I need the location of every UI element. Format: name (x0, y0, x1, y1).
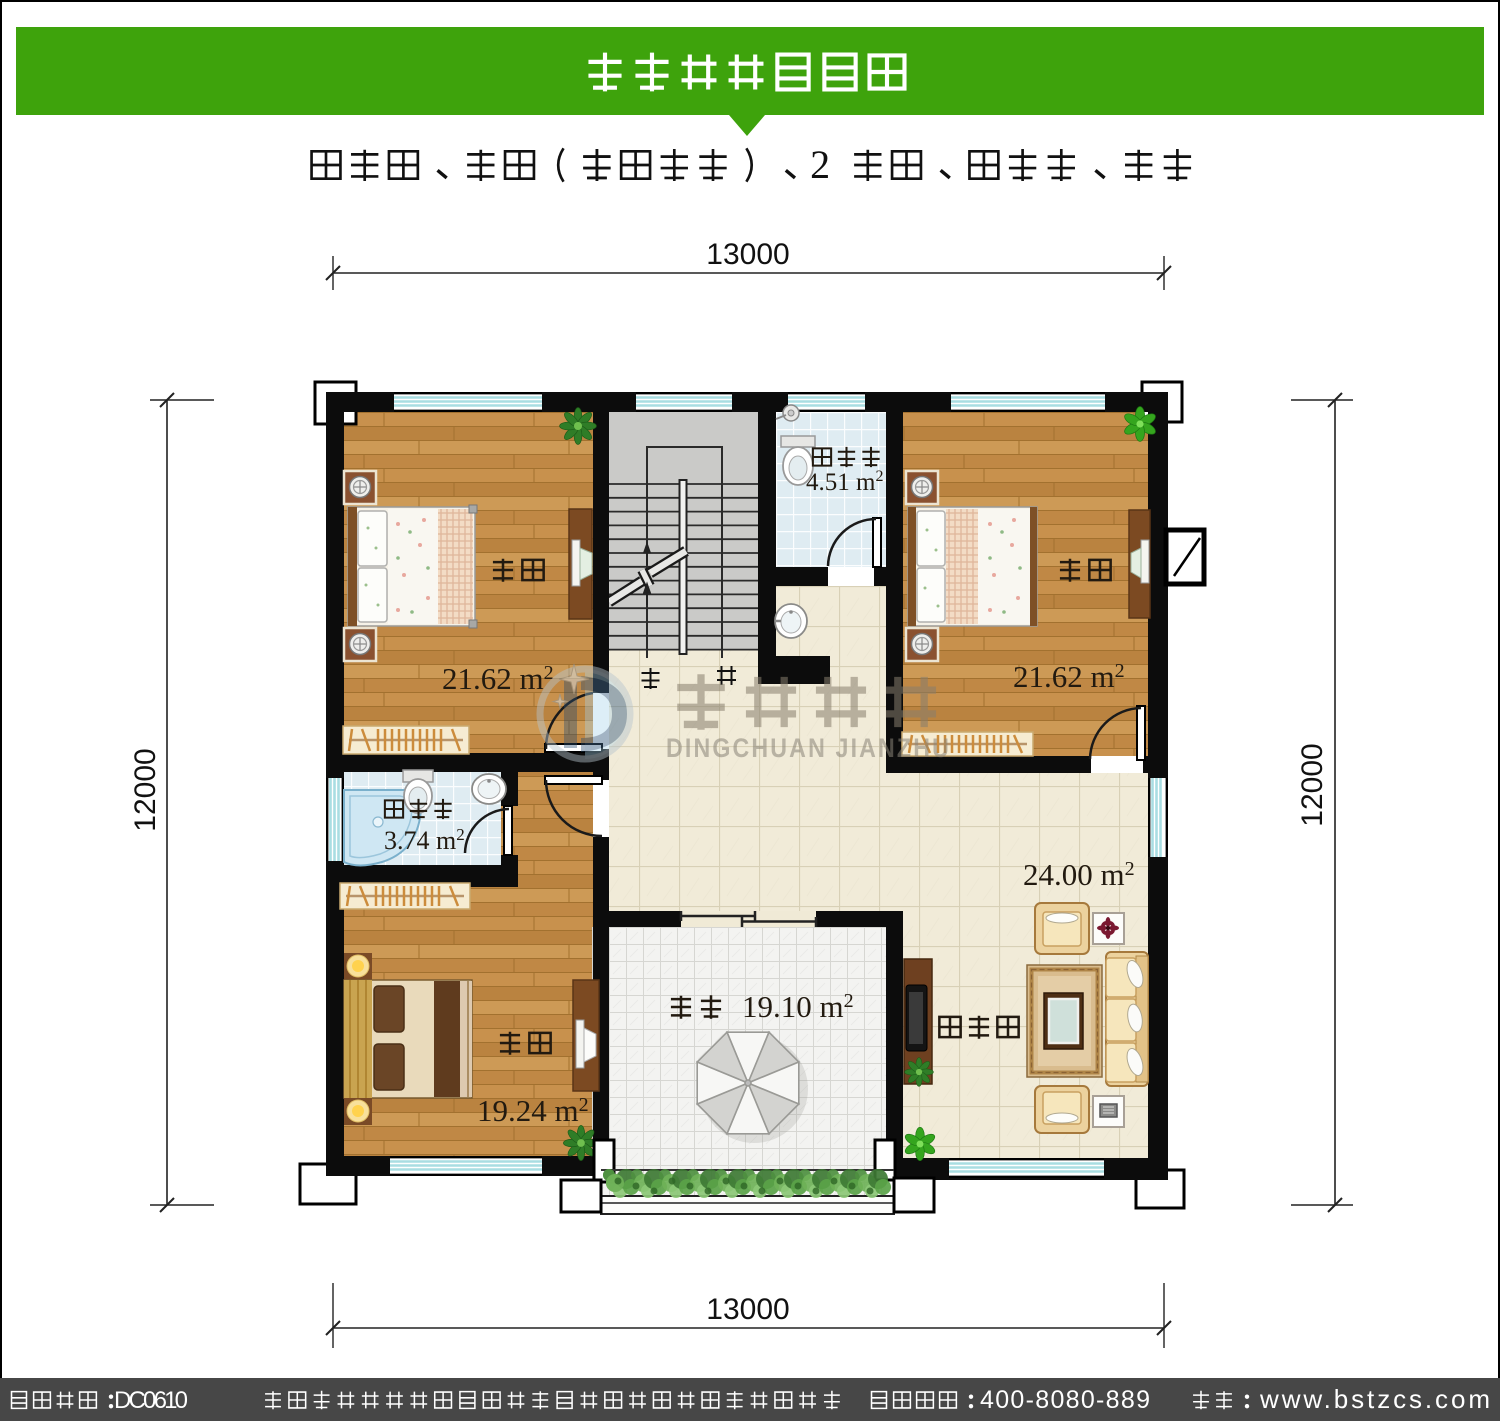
svg-text:400-8080-889: 400-8080-889 (980, 1386, 1150, 1414)
svg-text:4.51 m2: 4.51 m2 (806, 468, 883, 496)
svg-text:13000: 13000 (706, 1293, 789, 1326)
svg-text:24.00 m2: 24.00 m2 (1023, 857, 1135, 892)
svg-text:12000: 12000 (1296, 743, 1329, 826)
svg-text:21.62 m2: 21.62 m2 (1013, 659, 1125, 694)
svg-text:DINGCHUAN JIANZHU: DINGCHUAN JIANZHU (666, 733, 951, 763)
svg-text:19.10 m2: 19.10 m2 (742, 989, 854, 1024)
svg-text:13000: 13000 (706, 238, 789, 271)
svg-text:19.24 m2: 19.24 m2 (477, 1093, 589, 1128)
svg-text:2: 2 (810, 142, 830, 187)
svg-text:21.62 m2: 21.62 m2 (442, 661, 554, 696)
svg-text:12000: 12000 (129, 748, 162, 831)
svg-text:3.74 m2: 3.74 m2 (384, 825, 465, 855)
svg-text:DC0610: DC0610 (114, 1387, 188, 1414)
